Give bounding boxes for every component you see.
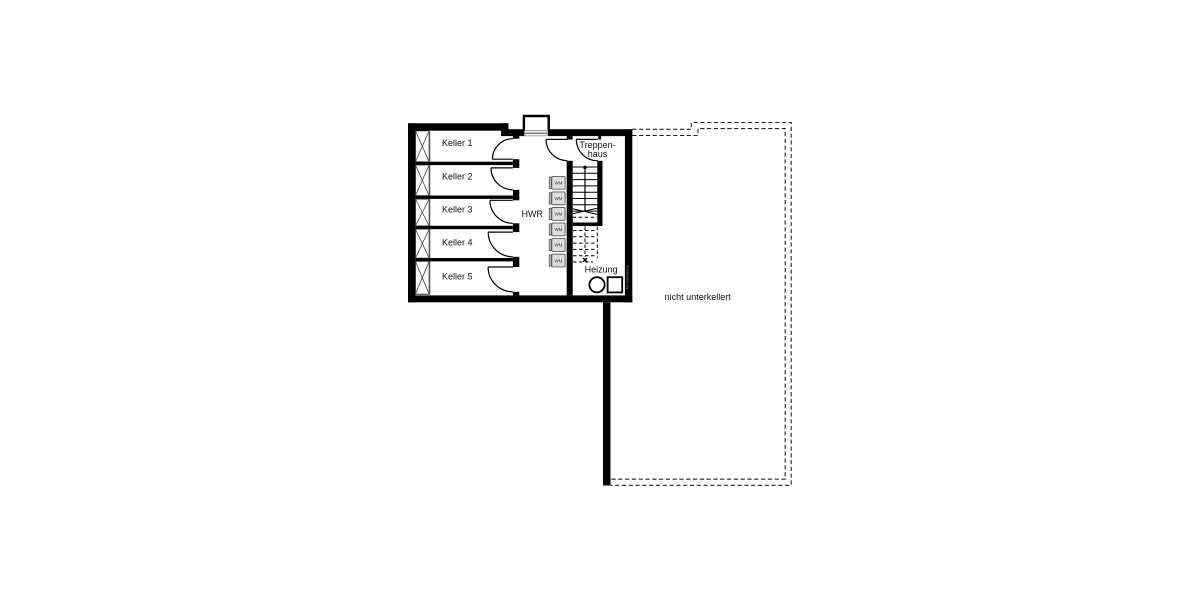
svg-text:WM: WM — [555, 258, 563, 263]
svg-text:Keller 1: Keller 1 — [442, 138, 473, 148]
svg-text:WM: WM — [555, 227, 563, 232]
svg-text:HWR: HWR — [522, 209, 544, 219]
svg-text:M1.Grundrisse: M1.Grundrisse — [626, 265, 630, 289]
svg-text:Keller 2: Keller 2 — [442, 172, 473, 182]
svg-text:WM: WM — [555, 196, 563, 201]
svg-text:Keller 5: Keller 5 — [442, 272, 473, 282]
svg-text:WM: WM — [555, 181, 563, 186]
svg-text:Keller 3: Keller 3 — [442, 205, 473, 215]
svg-text:Heizung: Heizung — [585, 265, 618, 275]
svg-text:WM: WM — [555, 243, 563, 248]
svg-text:haus: haus — [588, 149, 608, 159]
svg-text:nicht unterkellert: nicht unterkellert — [665, 292, 732, 302]
svg-text:Keller 4: Keller 4 — [442, 238, 473, 248]
svg-text:WM: WM — [555, 212, 563, 217]
